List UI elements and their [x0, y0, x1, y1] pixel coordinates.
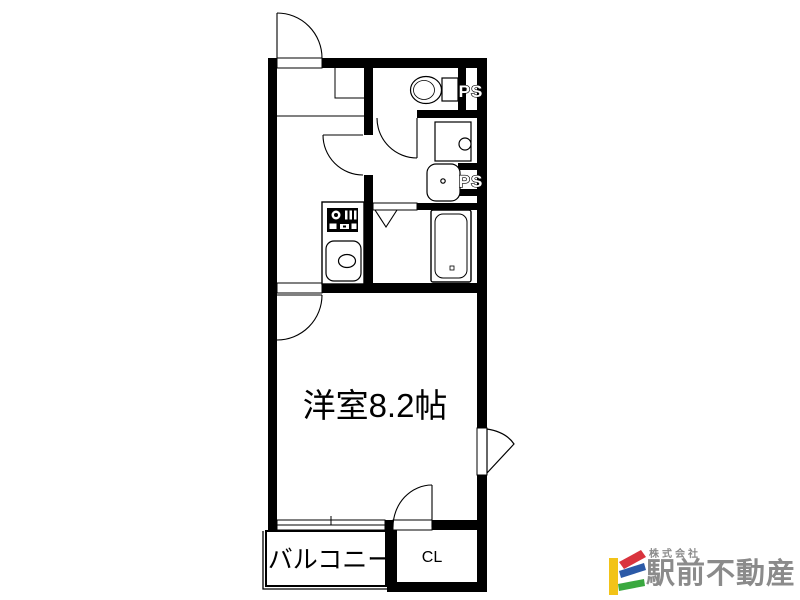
stove-knob1 [330, 224, 337, 230]
wash-basin [427, 164, 460, 201]
mainroom-door-threshold [277, 283, 322, 293]
pipe-space-label-1: PS [459, 82, 484, 101]
wall-mainroom-bottom-right [432, 520, 477, 530]
wall-ps2-stub-top [458, 163, 477, 170]
wall-left [268, 58, 277, 530]
toilet-door-arc [377, 118, 417, 158]
entry-lines [277, 68, 364, 116]
washroom-door-arc [323, 135, 363, 175]
toilet-door [377, 118, 417, 158]
wall-cl-bottom [387, 582, 487, 592]
wall-wash-bath [417, 203, 487, 210]
kitchen-sink-drain [339, 255, 356, 268]
stove-burner-dot [334, 213, 338, 217]
logo-bar-green [618, 579, 645, 591]
washroom-door [323, 135, 363, 175]
mainroom-door [277, 295, 322, 340]
wall-top [322, 58, 487, 68]
entrance-door-arc [277, 13, 322, 58]
bathtub-drain [450, 266, 454, 270]
wash-basin-drain [441, 179, 445, 183]
toilet-bowl-inner [414, 81, 435, 100]
wall-right-lower [477, 475, 487, 592]
cl-door-threshold [393, 520, 432, 530]
kitchen-unit [322, 202, 364, 284]
company-logo: 株式会社 駅前不動産 [609, 547, 796, 595]
bath-door-track [373, 203, 417, 210]
laundry-pan [435, 122, 471, 161]
wall-hall-toilet-upper [364, 68, 373, 135]
balcony-label: バルコニー [268, 546, 393, 574]
company-name: 駅前不動産 [646, 556, 796, 590]
right-door-threshold [477, 428, 487, 475]
outswing-door-symbol [487, 429, 514, 473]
logo-bar-yellow [609, 558, 618, 595]
entrance-threshold [277, 58, 322, 68]
folding-door-symbol [375, 210, 397, 227]
bathroom-folding-door [375, 210, 397, 227]
fixtures [322, 77, 471, 285]
floorplan-svg: 洋室8.2帖 バルコニー CL PS PS 株式会社 駅前不動産 [0, 0, 800, 600]
closet-label: CL [422, 549, 443, 566]
stove-icon [327, 208, 358, 232]
mainroom-door-arc [277, 295, 322, 340]
toilet [411, 77, 459, 104]
wall-hall-wash-lower [364, 175, 373, 288]
stove-knob2-dot [343, 226, 346, 228]
stove-knob3 [352, 224, 357, 230]
wall-toilet-bottom [417, 110, 487, 118]
shoe-cabinet-outline [335, 68, 364, 98]
laundry-drain [459, 138, 471, 150]
entrance-door [277, 13, 322, 58]
stove-grill-bar2 [350, 211, 353, 220]
bathtub [431, 210, 471, 282]
floorplan-page: 洋室8.2帖 バルコニー CL PS PS 株式会社 駅前不動産 [0, 0, 800, 600]
main-room-label: 洋室8.2帖 [303, 387, 448, 424]
pipe-space-label-2: PS [459, 172, 484, 191]
stove-grill-bar3 [354, 211, 357, 220]
stove-grill-bar1 [345, 211, 348, 220]
toilet-tank [442, 78, 458, 101]
